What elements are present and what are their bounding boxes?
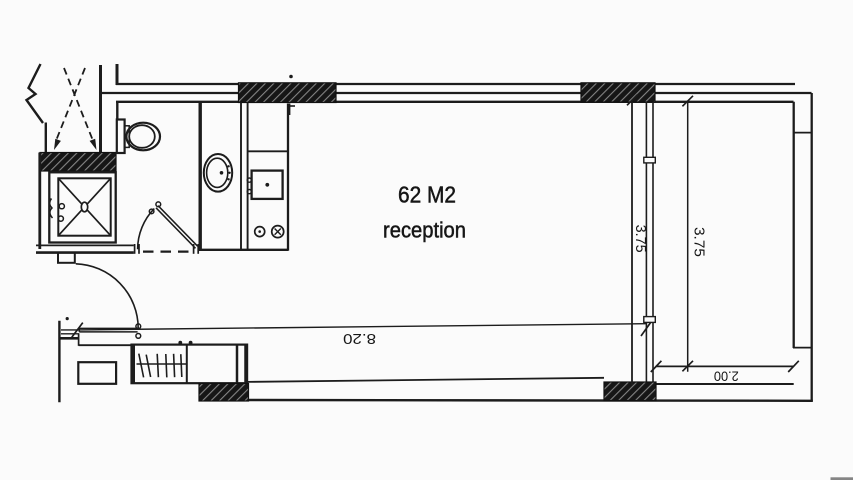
svg-text:2.00: 2.00	[714, 369, 739, 385]
svg-text:3.75: 3.75	[632, 225, 648, 253]
svg-text:62 M2: 62 M2	[398, 182, 456, 208]
svg-text:8.20: 8.20	[343, 330, 376, 346]
svg-text:3.75: 3.75	[690, 227, 706, 257]
svg-text:reception: reception	[383, 218, 466, 243]
